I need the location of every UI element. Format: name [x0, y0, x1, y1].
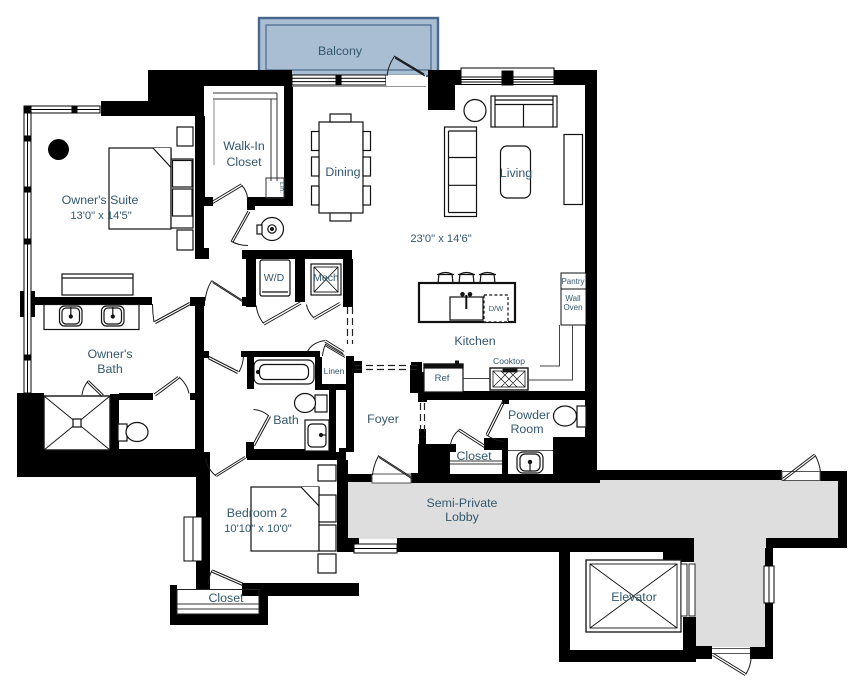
- svg-text:D/W: D/W: [489, 304, 505, 313]
- svg-text:Bedroom 2: Bedroom 2: [227, 506, 288, 520]
- svg-text:Closet: Closet: [226, 155, 262, 169]
- svg-text:Pantry: Pantry: [561, 277, 584, 286]
- svg-text:Wall: Wall: [565, 294, 580, 303]
- svg-text:Linen: Linen: [324, 366, 345, 376]
- svg-text:23'0" x 14'6": 23'0" x 14'6": [410, 233, 471, 245]
- svg-text:Owner's: Owner's: [87, 347, 132, 361]
- svg-text:Elevator: Elevator: [611, 590, 656, 604]
- svg-text:Owner's Suite: Owner's Suite: [62, 193, 139, 207]
- svg-text:Foyer: Foyer: [367, 412, 399, 426]
- svg-text:Semi-Private: Semi-Private: [427, 496, 498, 510]
- svg-text:Bath: Bath: [273, 413, 299, 427]
- svg-text:Closet: Closet: [456, 449, 492, 463]
- svg-text:Oven: Oven: [563, 303, 582, 312]
- svg-text:Bath: Bath: [97, 362, 123, 376]
- svg-text:Closet: Closet: [208, 591, 244, 605]
- svg-text:Kitchen: Kitchen: [454, 334, 495, 348]
- svg-text:Room: Room: [510, 422, 543, 436]
- svg-text:Balcony: Balcony: [318, 44, 363, 58]
- svg-text:Mech: Mech: [313, 272, 339, 284]
- svg-text:Lobby: Lobby: [445, 510, 480, 524]
- svg-text:Walk-In: Walk-In: [223, 139, 265, 153]
- svg-text:Lin.: Lin.: [278, 182, 285, 193]
- svg-text:Powder: Powder: [508, 408, 550, 422]
- svg-text:Living: Living: [500, 166, 532, 180]
- svg-text:Dining: Dining: [325, 165, 360, 179]
- svg-text:13'0" x 14'5": 13'0" x 14'5": [70, 210, 131, 222]
- svg-text:Cooktop: Cooktop: [493, 356, 525, 366]
- svg-text:Ref: Ref: [435, 373, 450, 384]
- svg-text:W/D: W/D: [264, 272, 285, 284]
- svg-text:10'10" x 10'0": 10'10" x 10'0": [224, 523, 292, 535]
